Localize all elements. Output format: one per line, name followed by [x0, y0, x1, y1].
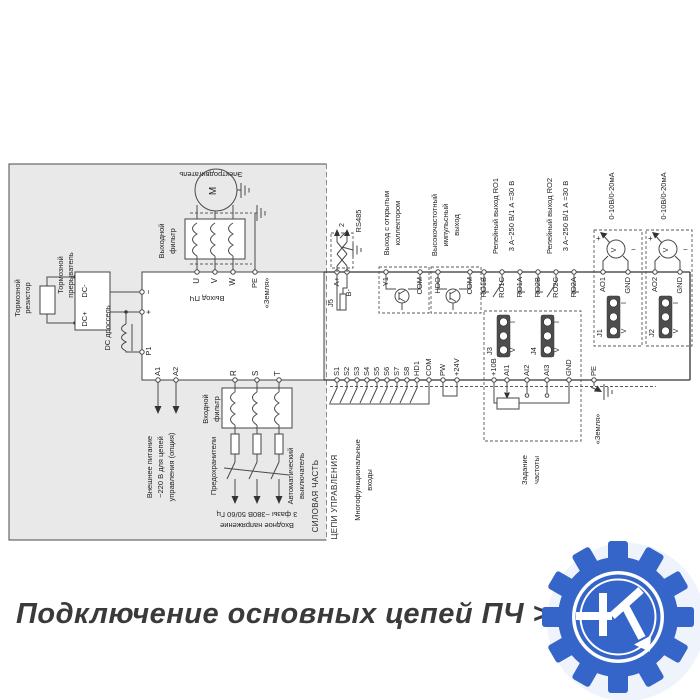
ao1-terminal-label: AO1 — [598, 277, 607, 292]
a1-terminal-label: A1 — [153, 367, 162, 376]
wire-count-label: 2 — [339, 223, 346, 227]
com-terminal-label: COM — [415, 277, 424, 295]
s-terminal — [255, 378, 259, 382]
digital-inputs-label: Многофункциональные — [353, 439, 362, 521]
hf-pulse-label: Высокочастотный — [430, 194, 439, 256]
s7-terminal-label: S7 — [392, 367, 401, 376]
v-mark: V — [673, 328, 680, 333]
minus-terminal-label: − — [144, 289, 153, 294]
ro1b-terminal-label: RO1B — [479, 277, 488, 297]
v-mark: V — [554, 347, 561, 352]
gear-k-logo — [542, 541, 700, 700]
brake-chopper-label: Тормозной — [56, 256, 65, 294]
screenshot-canvas: Тормозной резистор DC- DC+ Тормозной пре… — [0, 0, 700, 700]
hdo-terminal-label: HDO — [433, 277, 442, 294]
r-terminal-label: R — [229, 370, 238, 376]
ground-label: «Земля» — [593, 414, 602, 445]
pe-terminal-label: PE — [250, 278, 259, 288]
t-terminal — [277, 378, 281, 382]
i-mark: I — [554, 321, 561, 323]
p1-terminal-label: P1 — [144, 346, 153, 355]
motor-m-label: M — [208, 187, 219, 195]
v-mark: V — [621, 328, 628, 333]
ground-label: «Земля» — [262, 278, 271, 309]
plus-mark: + — [596, 234, 601, 243]
s1-terminal-label: S1 — [332, 367, 341, 376]
relay2-rating-label: 3 А~250 В/1 А =30 В — [561, 181, 570, 251]
digital-input-switches — [329, 378, 459, 404]
j3-jumper-label: J3 — [485, 347, 494, 355]
10v-terminal-label: +10В — [489, 358, 498, 376]
w-terminal-label: W — [228, 278, 237, 286]
ro2a-terminal-label: RO2A — [569, 277, 578, 297]
b-minus-terminal-label: B- — [344, 288, 353, 296]
ro2c-terminal-label: RO2C — [551, 276, 560, 297]
s2-terminal-label: S2 — [342, 367, 351, 376]
ai3-terminal-label: AI3 — [542, 365, 551, 376]
brake-chopper-label: прерыватель — [66, 252, 75, 298]
voltmeter-v-label: V — [663, 247, 670, 252]
frequency-reference-label: Задание — [520, 455, 529, 485]
plus-mark: + — [648, 234, 653, 243]
24v-terminal-label: +24V — [452, 358, 461, 376]
s-terminal-label: S — [251, 371, 260, 376]
inverter-block — [142, 272, 324, 380]
w-terminal — [231, 270, 235, 274]
voltmeter-v-label: V — [611, 247, 618, 252]
output-filter-label: фильтр — [168, 228, 177, 254]
a-plus-terminal-label: A+ — [332, 276, 341, 286]
com-terminal-label: COM — [465, 277, 474, 295]
t-terminal-label: T — [273, 371, 282, 376]
j2-jumper-label: J2 — [647, 329, 656, 337]
pe-terminal — [253, 270, 257, 274]
v-terminal-label: V — [210, 277, 219, 283]
output-filter-label: Выходной — [157, 224, 166, 259]
external-power-label: управления (опция) — [167, 432, 176, 501]
s4-terminal-label: S4 — [362, 367, 371, 376]
plus-terminal-label: + — [144, 309, 153, 314]
rs485-port — [331, 229, 361, 310]
ro1c-terminal-label: RO1C — [497, 276, 506, 297]
digital-inputs-label: входы — [365, 469, 374, 490]
j5-jumper-label: J5 — [326, 299, 335, 307]
input-voltage-label: 3 фазы ~380В 50/60 Гц — [216, 510, 297, 519]
fuses-label: Предохранители — [209, 437, 218, 495]
gnd-terminal-label: GND — [564, 359, 573, 376]
input-filter-label: фильтр — [212, 396, 221, 422]
open-collector-label: коллектором — [393, 201, 402, 246]
i-mark: I — [510, 321, 517, 323]
j1-jumper-label: J1 — [595, 329, 604, 337]
v-mark: V — [510, 347, 517, 352]
minus-mark: − — [631, 245, 636, 254]
com-terminal-label: COM — [424, 359, 433, 377]
gnd-terminal-label: GND — [623, 276, 632, 293]
control-section-label: ЦЕПИ УПРАВЛЕНИЯ — [330, 454, 339, 539]
ai2-terminal-label: AI2 — [522, 365, 531, 376]
open-collector-label: Выход с открытым — [382, 191, 391, 256]
ai1-terminal-label: AI1 — [502, 365, 511, 376]
external-power-label: Внешнее питание — [145, 436, 154, 498]
input-filter-label: Входной — [201, 394, 210, 423]
power-section-label: СИЛОВАЯ ЧАСТЬ — [311, 460, 320, 533]
s8-terminal-label: S8 — [402, 367, 411, 376]
pe-ground-bottom-icon — [591, 378, 612, 400]
hd1-terminal-label: HD1 — [412, 361, 421, 376]
j4-jumper-label: J4 — [529, 347, 538, 355]
minus-mark: − — [683, 245, 688, 254]
ao2-terminal-label: AO2 — [650, 277, 659, 292]
input-voltage-label: Входное напряжение — [220, 521, 294, 530]
frequency-reference-label: частоты — [532, 456, 541, 484]
y1-terminal-label: Y1 — [381, 277, 390, 286]
dc-choke-label: DC дроссель — [103, 305, 112, 350]
s5-terminal-label: S5 — [372, 367, 381, 376]
breaker-label: Автоматический — [286, 448, 295, 505]
rs485-label: RS485 — [354, 210, 363, 233]
dc-minus-terminal-label: DC- — [80, 284, 89, 298]
relay1-label: Релейный выход RO1 — [491, 178, 500, 254]
brake-resistor-label: Тормозной — [13, 279, 22, 317]
external-power-label: ~220 В для цепей — [156, 436, 165, 498]
inverter-output-label: Выход ПЧ — [190, 294, 225, 303]
relay1-rating-label: 3 А~250 В/1 А =30 В — [507, 181, 516, 251]
s6-terminal-label: S6 — [382, 367, 391, 376]
hf-pulse-label: импульсный — [441, 204, 450, 247]
v-terminal — [213, 270, 217, 274]
brake-resistor-label: резистор — [23, 282, 32, 313]
hf-pulse-label: выход — [452, 214, 461, 236]
i-mark: I — [673, 302, 680, 304]
ao2-range-label: 0-10В/0-20мА — [659, 172, 668, 219]
gnd-terminal-label: GND — [675, 276, 684, 293]
wiring-diagram: Тормозной резистор DC- DC+ Тормозной пре… — [0, 0, 700, 700]
relay2-label: Релейный выход RO2 — [545, 178, 554, 254]
ao1-range-label: 0-10В/0-20мА — [607, 172, 616, 219]
pw-terminal-label: PW — [438, 363, 447, 376]
u-terminal — [195, 270, 199, 274]
r-terminal — [233, 378, 237, 382]
i-mark: I — [621, 302, 628, 304]
dc-plus-terminal-label: DC+ — [80, 311, 89, 327]
ro2b-terminal-label: RO2B — [533, 277, 542, 297]
s3-terminal-label: S3 — [352, 367, 361, 376]
pe-terminal-label: PE — [589, 366, 598, 376]
u-terminal-label: U — [192, 278, 201, 284]
breaker-label: выключатель — [297, 453, 306, 499]
ro1a-terminal-label: RO1A — [515, 277, 524, 297]
a2-terminal-label: A2 — [171, 367, 180, 376]
